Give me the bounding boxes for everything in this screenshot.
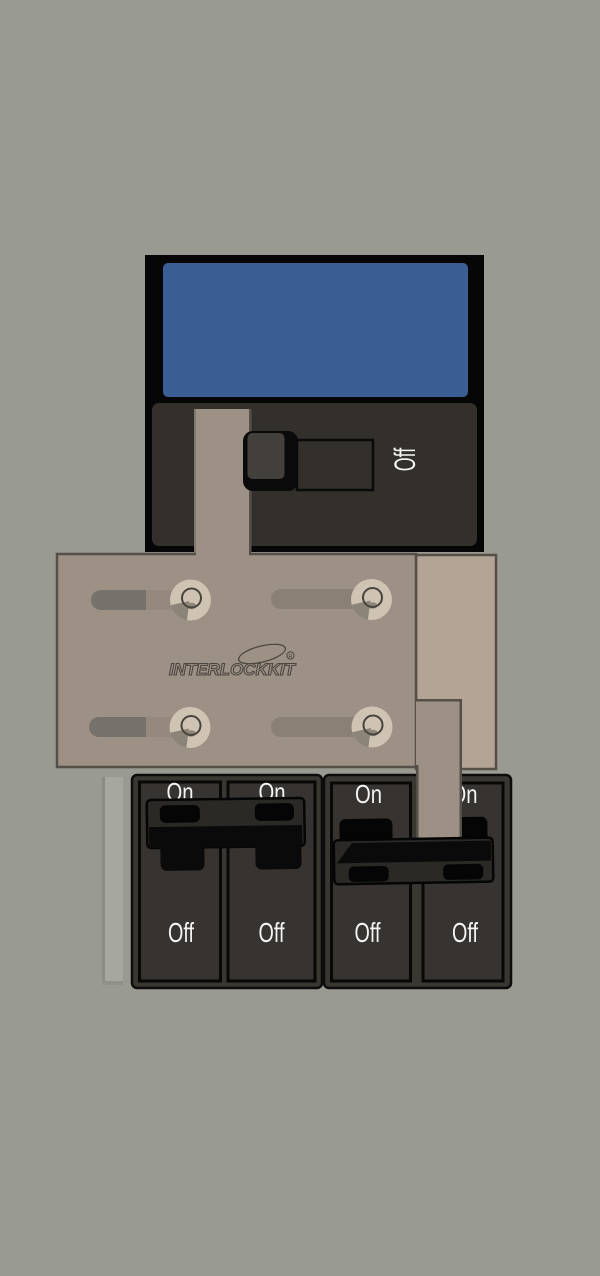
svg-text:On: On [355,779,382,809]
svg-text:Off: Off [389,447,422,471]
svg-text:Off: Off [355,917,381,948]
svg-text:Off: Off [259,917,285,948]
svg-text:Off: Off [168,917,194,948]
svg-text:Off: Off [452,917,478,948]
svg-text:R: R [288,654,292,660]
svg-text:INTERLOCKKIT: INTERLOCKKIT [169,661,297,679]
